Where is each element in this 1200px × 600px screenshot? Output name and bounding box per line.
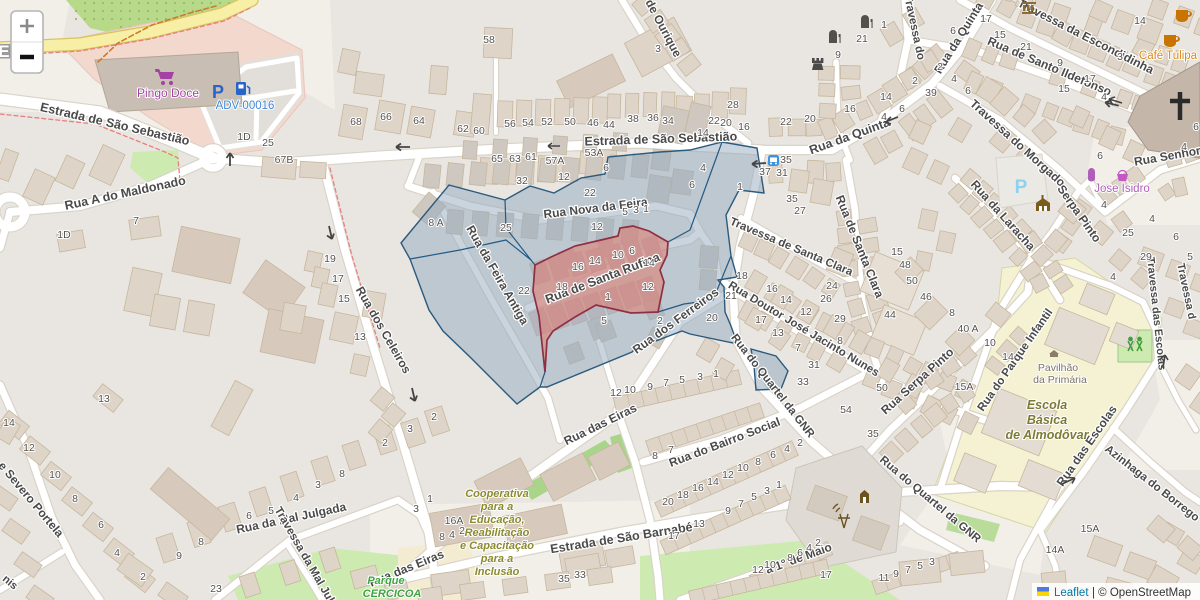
svg-text:24: 24 — [826, 280, 838, 292]
svg-text:26: 26 — [820, 293, 832, 305]
svg-text:3: 3 — [697, 371, 703, 383]
svg-text:21: 21 — [1020, 41, 1032, 53]
svg-text:6: 6 — [629, 245, 635, 257]
svg-text:14: 14 — [780, 294, 792, 306]
svg-text:14: 14 — [1002, 351, 1014, 363]
svg-text:65: 65 — [491, 153, 503, 165]
svg-text:12: 12 — [591, 221, 603, 233]
svg-text:15A: 15A — [1081, 523, 1100, 535]
svg-text:3: 3 — [655, 43, 661, 55]
svg-text:21: 21 — [856, 33, 868, 45]
svg-text:66: 66 — [380, 111, 392, 123]
svg-text:18: 18 — [677, 489, 689, 501]
svg-text:12: 12 — [800, 306, 812, 318]
svg-text:6: 6 — [770, 449, 776, 461]
svg-text:15: 15 — [994, 29, 1006, 41]
svg-text:14: 14 — [707, 476, 719, 488]
svg-text:13: 13 — [98, 393, 110, 405]
svg-text:20: 20 — [706, 312, 718, 324]
svg-text:12: 12 — [642, 281, 654, 293]
svg-text:5: 5 — [751, 491, 757, 503]
svg-text:6: 6 — [689, 179, 695, 191]
svg-text:17: 17 — [980, 13, 992, 25]
svg-text:31: 31 — [808, 359, 820, 371]
svg-text:Parque: Parque — [367, 575, 404, 587]
svg-text:9: 9 — [647, 381, 653, 393]
svg-text:22: 22 — [708, 115, 720, 127]
svg-text:3: 3 — [764, 485, 770, 497]
svg-text:Pavilhão: Pavilhão — [1038, 362, 1078, 374]
svg-text:48: 48 — [899, 259, 911, 271]
svg-text:3: 3 — [929, 556, 935, 568]
svg-text:6: 6 — [98, 519, 104, 531]
svg-text:13: 13 — [772, 327, 784, 339]
svg-text:9: 9 — [725, 505, 731, 517]
svg-text:4: 4 — [1110, 271, 1116, 283]
svg-text:1: 1 — [427, 493, 433, 505]
svg-text:12: 12 — [23, 442, 35, 454]
svg-text:4: 4 — [1181, 141, 1187, 153]
svg-text:14: 14 — [697, 127, 709, 139]
svg-text:60: 60 — [473, 125, 485, 137]
svg-text:7: 7 — [795, 342, 801, 354]
svg-text:54: 54 — [522, 117, 534, 129]
svg-text:4: 4 — [881, 111, 887, 123]
svg-text:2: 2 — [382, 437, 388, 449]
svg-text:31: 31 — [776, 167, 788, 179]
svg-text:8: 8 — [755, 456, 761, 468]
svg-text:Básica: Básica — [1027, 413, 1067, 427]
svg-text:61: 61 — [525, 151, 537, 163]
svg-text:6: 6 — [1097, 150, 1103, 162]
svg-text:8: 8 — [439, 531, 445, 543]
svg-text:2: 2 — [937, 61, 943, 73]
svg-text:e Capacitação: e Capacitação — [460, 540, 534, 552]
svg-text:58: 58 — [483, 34, 495, 46]
svg-text:Inclusão: Inclusão — [475, 566, 520, 578]
svg-text:68: 68 — [350, 116, 362, 128]
svg-text:4: 4 — [1101, 91, 1107, 103]
svg-text:2: 2 — [797, 437, 803, 449]
svg-text:4: 4 — [784, 443, 790, 455]
svg-text:17: 17 — [1084, 73, 1096, 85]
svg-text:6: 6 — [797, 547, 803, 559]
svg-text:15: 15 — [338, 293, 350, 305]
svg-text:10: 10 — [764, 559, 776, 571]
svg-text:12: 12 — [722, 469, 734, 481]
svg-text:4: 4 — [700, 162, 706, 174]
svg-text:10: 10 — [737, 462, 749, 474]
svg-text:P: P — [212, 82, 224, 102]
svg-text:9: 9 — [893, 568, 899, 580]
svg-text:14: 14 — [643, 257, 655, 269]
svg-text:3: 3 — [407, 423, 413, 435]
svg-text:8 A: 8 A — [428, 217, 443, 229]
svg-text:54: 54 — [840, 404, 852, 416]
svg-text:14A: 14A — [1046, 544, 1065, 556]
svg-text:5: 5 — [268, 505, 274, 517]
svg-text:7: 7 — [663, 377, 669, 389]
svg-text:6: 6 — [950, 25, 956, 37]
svg-text:12: 12 — [752, 564, 764, 576]
svg-text:Café Tulipa: Café Tulipa — [1139, 50, 1198, 62]
svg-text:34: 34 — [662, 115, 674, 127]
svg-text:20: 20 — [804, 113, 816, 125]
svg-text:de Almodôvar: de Almodôvar — [1006, 428, 1090, 442]
svg-text:25: 25 — [1122, 227, 1134, 239]
svg-text:17: 17 — [668, 530, 680, 542]
svg-text:1D: 1D — [237, 131, 251, 143]
svg-text:38: 38 — [627, 113, 639, 125]
svg-text:4: 4 — [114, 547, 120, 559]
svg-text:1: 1 — [643, 203, 649, 215]
svg-text:17: 17 — [332, 273, 344, 285]
svg-text:52: 52 — [541, 116, 553, 128]
svg-text:16: 16 — [572, 261, 584, 273]
svg-text:Pingo Doce: Pingo Doce — [137, 86, 199, 100]
svg-text:35: 35 — [867, 428, 879, 440]
svg-text:3: 3 — [1117, 51, 1123, 63]
svg-text:Escola: Escola — [1027, 398, 1067, 412]
svg-text:6: 6 — [246, 510, 252, 522]
svg-text:12: 12 — [610, 387, 622, 399]
svg-text:10: 10 — [49, 469, 61, 481]
svg-text:1: 1 — [881, 19, 887, 31]
svg-text:1: 1 — [605, 291, 611, 303]
svg-text:19: 19 — [324, 253, 336, 265]
svg-text:8: 8 — [787, 552, 793, 564]
svg-text:4: 4 — [1101, 199, 1107, 211]
svg-text:7: 7 — [133, 215, 139, 227]
svg-text:6: 6 — [603, 162, 609, 174]
svg-text:36: 36 — [647, 112, 659, 124]
svg-text:50: 50 — [564, 116, 576, 128]
svg-text:67B: 67B — [275, 154, 294, 166]
svg-text:para a: para a — [480, 501, 513, 513]
svg-text:22: 22 — [584, 187, 596, 199]
svg-text:15: 15 — [1058, 83, 1070, 95]
svg-text:21: 21 — [725, 290, 737, 302]
svg-text:Jose Isidro: Jose Isidro — [1094, 183, 1150, 195]
svg-text:16: 16 — [766, 283, 778, 295]
svg-text:50: 50 — [876, 382, 888, 394]
svg-text:22: 22 — [780, 116, 792, 128]
svg-text:7: 7 — [668, 444, 674, 456]
svg-text:4: 4 — [806, 542, 812, 554]
svg-text:16: 16 — [692, 482, 704, 494]
svg-text:Educação,: Educação, — [469, 514, 524, 526]
svg-text:2: 2 — [912, 75, 918, 87]
svg-text:44: 44 — [603, 119, 615, 131]
svg-text:22: 22 — [518, 285, 530, 297]
svg-text:2: 2 — [657, 315, 663, 327]
svg-text:5: 5 — [622, 206, 628, 218]
svg-text:3: 3 — [413, 503, 419, 515]
svg-text:29: 29 — [834, 313, 846, 325]
svg-text:17: 17 — [820, 569, 832, 581]
svg-text:7: 7 — [738, 498, 744, 510]
svg-text:13: 13 — [693, 518, 705, 530]
svg-text:1D: 1D — [57, 229, 71, 241]
svg-text:10: 10 — [612, 249, 624, 261]
svg-text:Leaflet: Leaflet — [1054, 587, 1089, 599]
svg-text:14: 14 — [589, 255, 601, 267]
svg-text:44: 44 — [884, 309, 896, 321]
svg-text:8: 8 — [339, 468, 345, 480]
svg-text:12: 12 — [558, 171, 570, 183]
svg-text:13: 13 — [354, 331, 366, 343]
svg-text:20: 20 — [662, 496, 674, 508]
svg-text:8: 8 — [72, 493, 78, 505]
svg-text:16: 16 — [844, 103, 856, 115]
svg-text:P: P — [1015, 177, 1028, 198]
svg-text:11: 11 — [879, 572, 890, 584]
svg-text:5: 5 — [679, 374, 685, 386]
svg-text:53A: 53A — [585, 147, 604, 159]
svg-text:para a: para a — [480, 553, 513, 565]
svg-text:18: 18 — [556, 281, 568, 293]
svg-text:2: 2 — [815, 537, 821, 549]
svg-text:CERCICOA: CERCICOA — [363, 588, 422, 600]
svg-text:1: 1 — [713, 368, 719, 380]
svg-text:8: 8 — [652, 450, 658, 462]
svg-text:da Primária: da Primária — [1033, 374, 1087, 386]
svg-text:63: 63 — [509, 153, 521, 165]
svg-text:33: 33 — [797, 376, 809, 388]
svg-text:10: 10 — [624, 384, 636, 396]
svg-text:4: 4 — [293, 492, 299, 504]
svg-text:4: 4 — [449, 529, 455, 541]
svg-text:4: 4 — [1149, 213, 1155, 225]
svg-text:57A: 57A — [546, 155, 565, 167]
svg-text:3: 3 — [633, 204, 639, 216]
svg-text:14: 14 — [3, 417, 15, 429]
svg-text:Reabilitação: Reabilitação — [465, 527, 530, 539]
svg-text:35: 35 — [558, 573, 570, 585]
svg-text:6: 6 — [965, 85, 971, 97]
svg-text:7: 7 — [905, 564, 911, 576]
svg-text:28: 28 — [727, 99, 739, 111]
svg-text:33: 33 — [574, 569, 586, 581]
svg-text:1: 1 — [737, 181, 743, 193]
svg-text:14: 14 — [880, 91, 892, 103]
svg-text:15: 15 — [891, 246, 903, 258]
svg-text:46: 46 — [920, 291, 932, 303]
svg-text:5: 5 — [1187, 251, 1193, 263]
svg-text:56: 56 — [504, 118, 516, 130]
svg-text:6: 6 — [899, 103, 905, 115]
svg-text:25: 25 — [262, 137, 274, 149]
svg-text:2: 2 — [431, 411, 437, 423]
svg-text:| © OpenStreetMap: | © OpenStreetMap — [1092, 587, 1191, 599]
svg-text:37: 37 — [759, 166, 771, 178]
svg-text:40 A: 40 A — [957, 323, 978, 335]
svg-text:5: 5 — [917, 560, 923, 572]
svg-text:62: 62 — [457, 123, 469, 135]
svg-text:25: 25 — [500, 222, 512, 234]
svg-text:1: 1 — [776, 479, 782, 491]
svg-text:29: 29 — [1140, 251, 1152, 263]
svg-text:8: 8 — [837, 335, 843, 347]
svg-text:17: 17 — [755, 314, 767, 326]
svg-text:3: 3 — [315, 479, 321, 491]
svg-text:35: 35 — [780, 154, 792, 166]
svg-text:23: 23 — [210, 583, 222, 595]
svg-text:20: 20 — [720, 117, 732, 129]
svg-text:9: 9 — [176, 550, 182, 562]
svg-text:4: 4 — [951, 73, 957, 85]
svg-text:6: 6 — [1173, 231, 1179, 243]
svg-text:46: 46 — [587, 117, 599, 129]
svg-text:8: 8 — [949, 307, 955, 319]
svg-text:35: 35 — [786, 193, 798, 205]
svg-text:9: 9 — [835, 49, 841, 61]
svg-text:16: 16 — [738, 121, 750, 133]
svg-text:8: 8 — [198, 536, 204, 548]
svg-text:32: 32 — [516, 175, 528, 187]
svg-text:15A: 15A — [955, 381, 974, 393]
svg-text:14: 14 — [1134, 15, 1146, 27]
svg-text:5: 5 — [601, 315, 607, 327]
svg-text:Cooperativa: Cooperativa — [465, 488, 529, 500]
svg-text:6: 6 — [1193, 121, 1199, 133]
svg-text:39: 39 — [925, 87, 937, 99]
svg-text:10: 10 — [984, 337, 996, 349]
svg-text:64: 64 — [413, 115, 425, 127]
svg-text:2: 2 — [140, 571, 146, 583]
svg-text:50: 50 — [906, 275, 918, 287]
svg-text:9: 9 — [1057, 57, 1063, 69]
svg-text:18: 18 — [736, 270, 748, 282]
svg-text:27: 27 — [794, 205, 806, 217]
svg-text:ADV-00016: ADV-00016 — [216, 100, 275, 112]
